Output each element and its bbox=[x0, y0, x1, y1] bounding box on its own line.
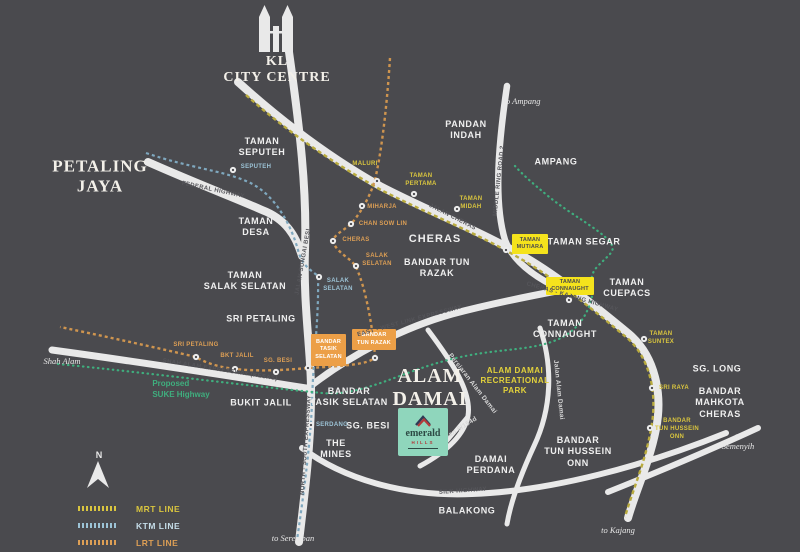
place-bandar-tun-razak: BANDAR TUN RAZAK bbox=[404, 257, 470, 280]
place-taman-cuepacs: TAMAN CUEPACS bbox=[603, 277, 651, 300]
direction-to-shah-alam: to Shah Alam bbox=[44, 346, 81, 366]
station-box-bandar-tasik-selatan: BANDAR TASIK SELATAN bbox=[311, 334, 346, 366]
note-proposed-suke-highway: Proposed SUKE Highway bbox=[152, 378, 209, 400]
place-sg-long: SG. LONG bbox=[693, 363, 742, 374]
legend-label-lrt: LRT LINE bbox=[136, 538, 178, 548]
place-taman-desa: TAMAN DESA bbox=[239, 216, 274, 239]
place-damai-perdana: DAMAI PERDANA bbox=[467, 454, 516, 477]
road-network bbox=[0, 0, 800, 552]
project-name: emerald bbox=[406, 428, 441, 439]
station-label-bandar-tun-hussein-onn: BANDAR TUN HUSSEIN ONN bbox=[655, 417, 699, 441]
place-alam-damai-recreational-park: ALAM DAMAI RECREATIONAL PARK bbox=[481, 366, 550, 396]
legend: MRT LINE KTM LINE LRT LINE bbox=[78, 500, 180, 551]
legend-item-ktm: KTM LINE bbox=[78, 517, 180, 534]
place-petaling-jaya: PETALING JAYA bbox=[52, 156, 148, 195]
station-label-taman-pertama: TAMAN PERTAMA bbox=[405, 172, 436, 188]
place-bandar-mahkota-cheras: BANDAR MAHKOTA CHERAS bbox=[695, 386, 745, 420]
compass-n-label: N bbox=[96, 450, 103, 460]
legend-label-ktm: KTM LINE bbox=[136, 521, 180, 531]
station-label-bkt-jalil: BKT JALIL bbox=[220, 352, 253, 360]
station-dot-cheras bbox=[330, 238, 336, 244]
place-taman-connaught: TAMAN CONNAUGHT bbox=[533, 318, 597, 341]
place-ampang: AMPANG bbox=[535, 156, 578, 167]
place-cheras: CHERAS bbox=[409, 233, 461, 247]
place-taman-seputeh: TAMAN SEPUTEH bbox=[239, 136, 286, 159]
station-label-sri-raya: SRI RAYA bbox=[659, 384, 689, 392]
place-kl-city-centre: KL CITY CENTRE bbox=[223, 54, 330, 86]
place-taman-segar: TAMAN SEGAR bbox=[548, 236, 621, 247]
place-bukit-jalil: BUKIT JALIL bbox=[230, 397, 292, 408]
station-label-salak-selatan-lrt: SALAK SELATAN bbox=[362, 252, 392, 268]
direction-to-semenyih: to Semenyih bbox=[722, 431, 755, 451]
station-dot-taman-suntex bbox=[641, 336, 647, 342]
station-label-chan-sow-lin: CHAN SOW LIN bbox=[359, 220, 407, 228]
place-bandar-tasik-selatan: BANDAR TASIK SELATAN bbox=[310, 386, 388, 409]
station-label-sri-petaling: SRI PETALING bbox=[173, 341, 218, 349]
place-alam-damai: ALAM DAMAI bbox=[393, 365, 468, 411]
station-dot-miharja bbox=[359, 203, 365, 209]
station-box-taman-mutiara: TAMAN MUTIARA bbox=[512, 234, 548, 254]
station-label-maluri: MALURI bbox=[352, 160, 377, 168]
place-balakong: BALAKONG bbox=[439, 505, 496, 516]
ktm-line bbox=[146, 153, 318, 540]
road-federal-highway bbox=[148, 162, 302, 256]
place-sg-besi: SG. BESI bbox=[346, 420, 390, 431]
station-dot-salak-selatan-lrt bbox=[353, 263, 359, 269]
station-dot-bandar-tun-razak bbox=[372, 355, 378, 361]
ktm-line-swatch bbox=[78, 523, 118, 528]
station-dot-sri-raya bbox=[649, 385, 655, 391]
place-the-mines: THE MINES bbox=[320, 438, 352, 461]
project-subtitle: HILLS bbox=[412, 440, 435, 445]
project-logo-box: emerald HILLS bbox=[398, 408, 448, 456]
petronas-towers-icon bbox=[259, 5, 293, 52]
station-label-serdang: SERDANG bbox=[316, 421, 348, 429]
legend-item-mrt: MRT LINE bbox=[78, 500, 180, 517]
place-bandar-tun-hussein-onn: BANDAR TUN HUSSEIN ONN bbox=[544, 435, 612, 469]
station-dot-taman-mutiara bbox=[503, 247, 509, 253]
station-dot-seputeh bbox=[230, 167, 236, 173]
station-label-seputeh: SEPUTEH bbox=[241, 163, 271, 171]
station-dot-salak-selatan-ktm bbox=[316, 274, 322, 280]
station-dot-taman-pertama bbox=[411, 191, 417, 197]
station-dot-bandar-tun-hussein-onn bbox=[647, 425, 653, 431]
place-sri-petaling: SRI PETALING bbox=[226, 313, 296, 324]
location-map: KL CITY CENTRE PETALING JAYA ALAM DAMAI … bbox=[0, 0, 800, 552]
station-label-sg-besi-station: SG. BESI bbox=[264, 357, 292, 365]
lrt-line-swatch bbox=[78, 540, 118, 545]
station-label-miharja: MIHARJA bbox=[367, 203, 396, 211]
direction-to-kajang: to Kajang bbox=[601, 525, 635, 535]
station-dot-maluri bbox=[374, 178, 380, 184]
legend-item-lrt: LRT LINE bbox=[78, 534, 180, 551]
station-label-salak-selatan-ktm: SALAK SELATAN bbox=[323, 277, 353, 293]
legend-label-mrt: MRT LINE bbox=[136, 504, 180, 514]
lrt-line bbox=[60, 58, 390, 370]
station-label-taman-midah: TAMAN MIDAH bbox=[460, 195, 483, 211]
station-dot-chan-sow-lin bbox=[348, 221, 354, 227]
station-label-cheras-station: CHERAS bbox=[342, 236, 369, 244]
station-label-taman-suntex: TAMAN SUNTEX bbox=[648, 330, 674, 346]
place-taman-salak-selatan: TAMAN SALAK SELATAN bbox=[204, 270, 286, 293]
project-tagline-rule bbox=[408, 448, 438, 452]
mrt-line-swatch bbox=[78, 506, 118, 511]
station-dot-bandar-tasik-selatan bbox=[305, 365, 311, 371]
direction-to-seremban: to Seremban bbox=[272, 533, 314, 543]
direction-to-ampang: to Ampang bbox=[504, 96, 541, 106]
project-logo-mark-icon bbox=[413, 413, 433, 427]
station-dot-sg-besi bbox=[273, 369, 279, 375]
station-dot-sri-petaling bbox=[193, 354, 199, 360]
place-pandan-indah: PANDAN INDAH bbox=[445, 119, 486, 142]
road-jalan-alam-damai bbox=[507, 328, 549, 524]
north-arrow-icon bbox=[87, 461, 109, 488]
